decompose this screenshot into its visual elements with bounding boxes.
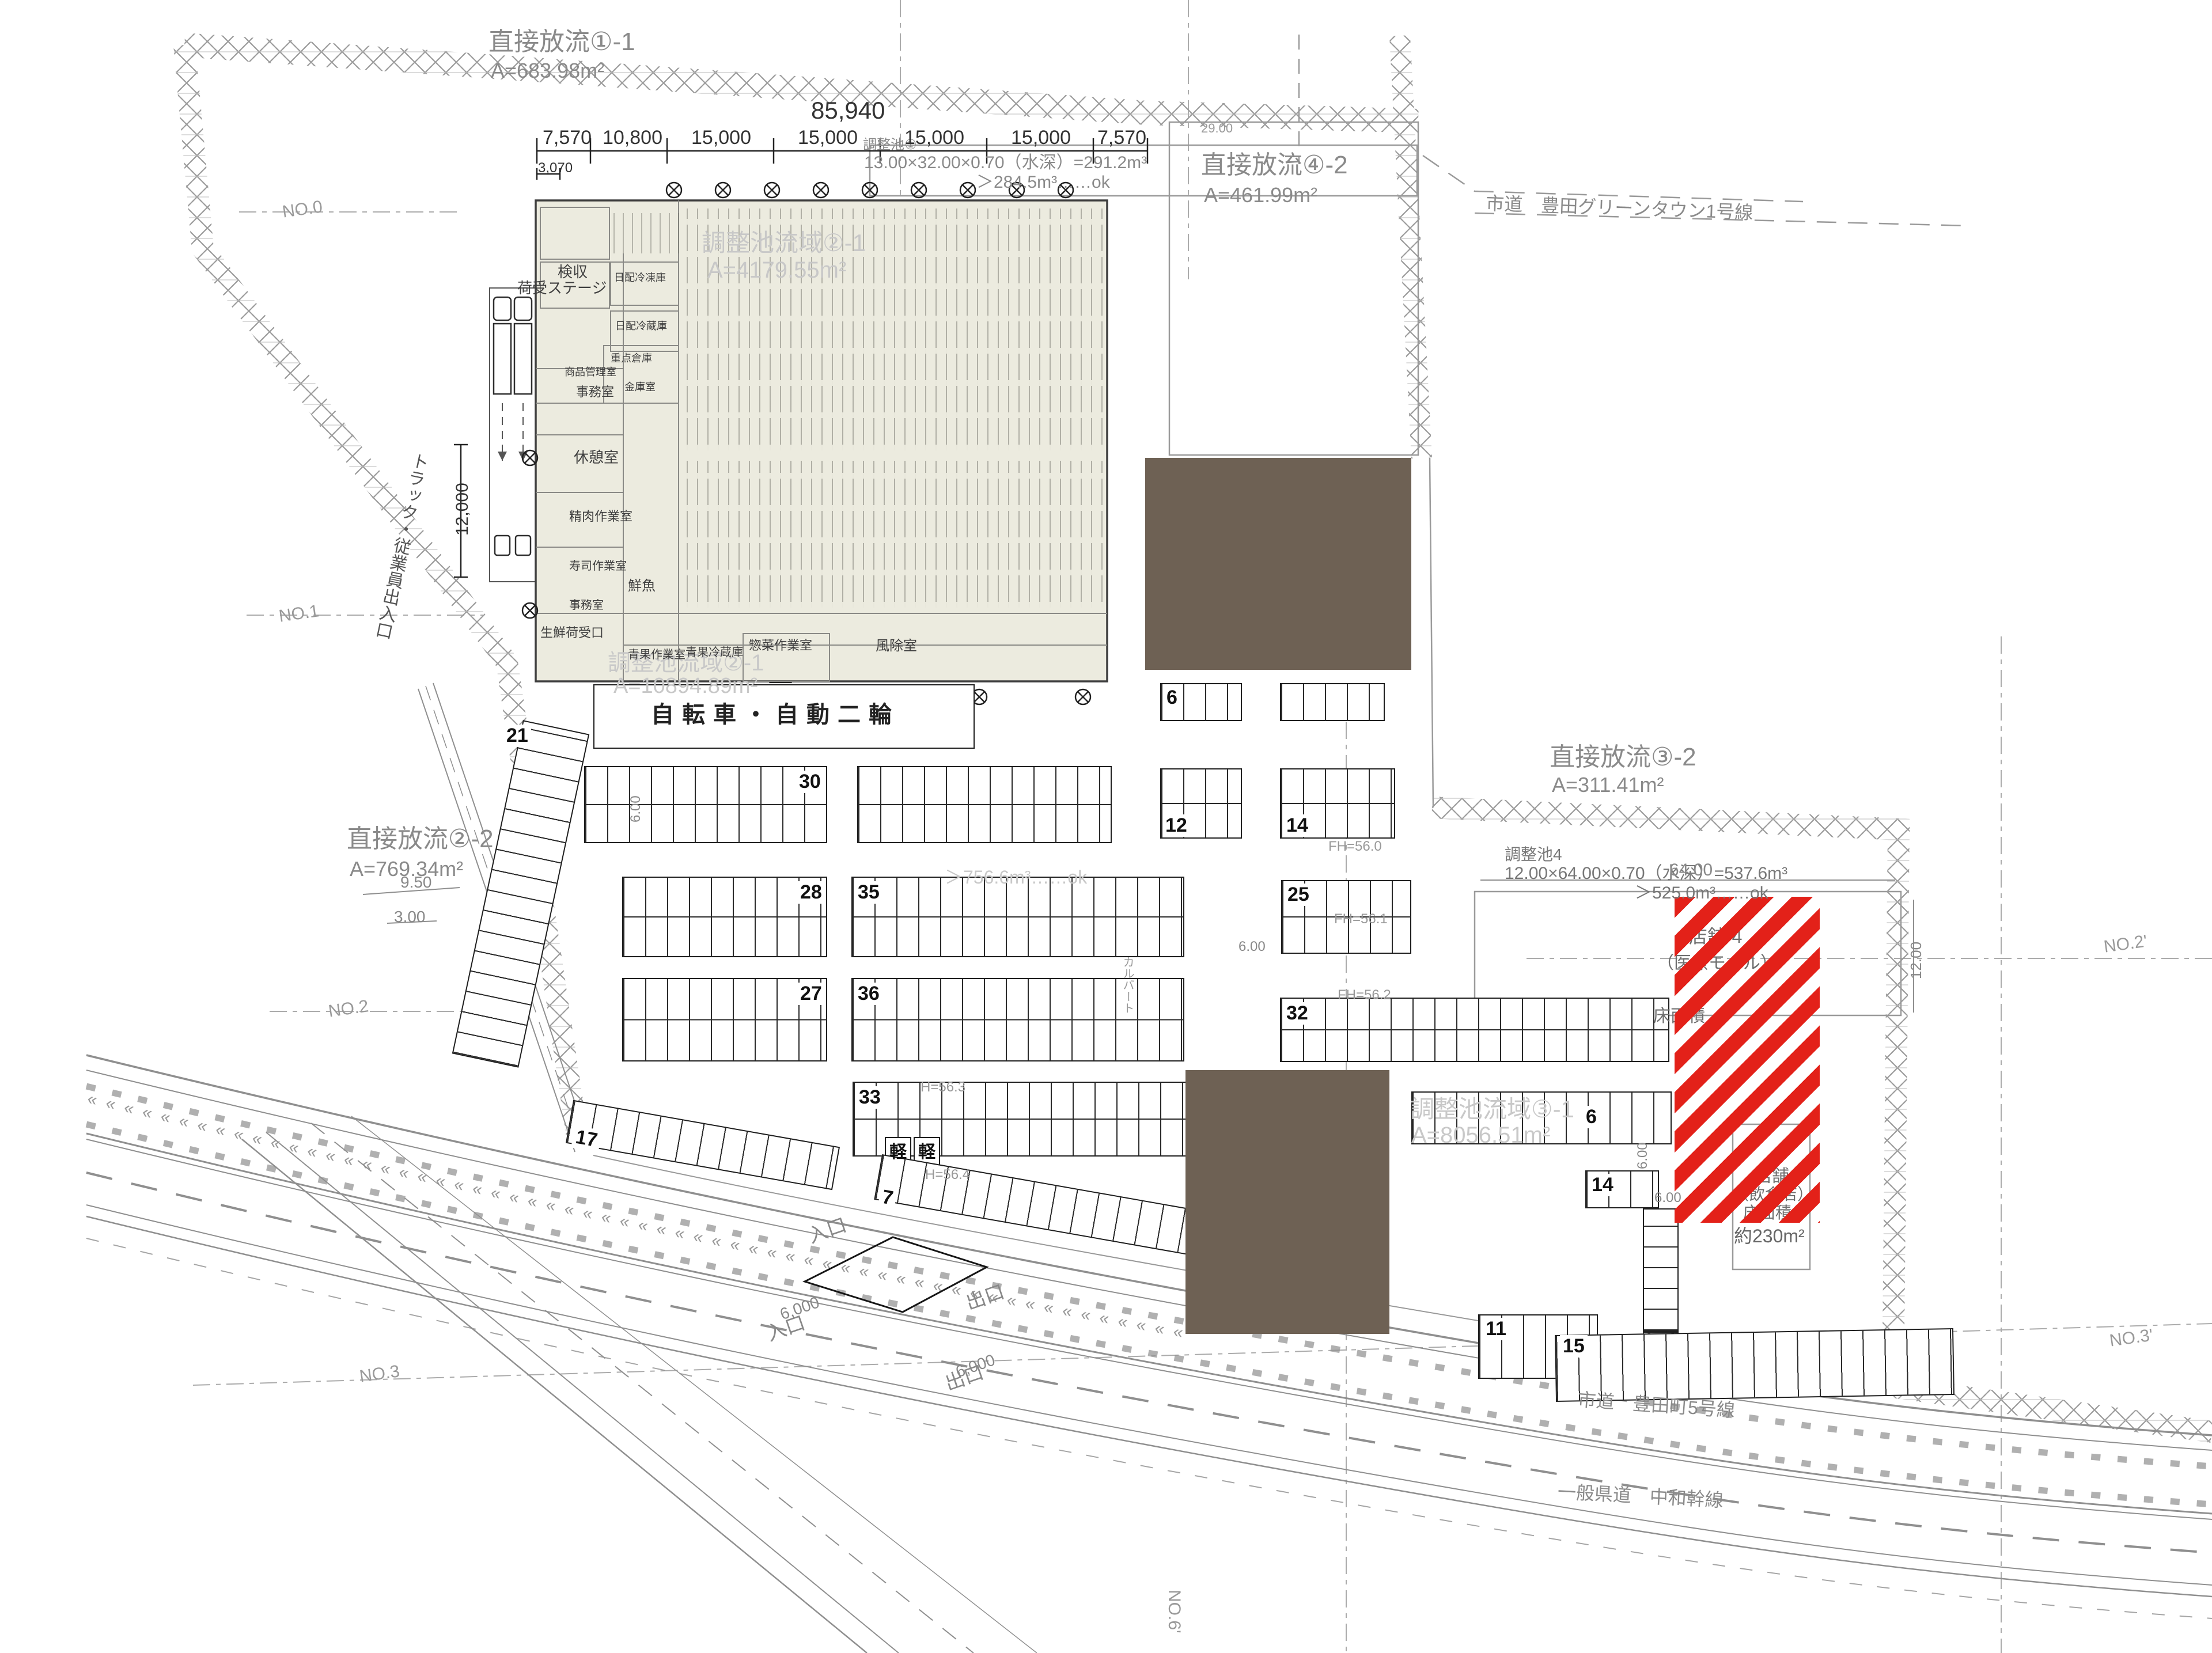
culvert-label: カルバート — [1120, 956, 1134, 1014]
room-kenshu: 検収 — [558, 264, 588, 281]
parking-num-30: 30 — [796, 771, 824, 793]
room-stage: 荷受ステージ — [517, 280, 607, 297]
dim-seg-4: 15,000 — [904, 127, 964, 149]
discharge-4-2-label: 直接放流④-2 — [1201, 151, 1348, 180]
parking-kei-1: 軽 — [889, 1143, 907, 1163]
parking-num-33: 33 — [856, 1086, 884, 1109]
dim-sub: 3,070 — [538, 160, 573, 176]
parking-num-14b: 14 — [1589, 1174, 1616, 1196]
parking-row-27 — [622, 978, 827, 1061]
discharge-1-1-label: 直接放流①-1 — [488, 28, 635, 57]
parking-kei-2: 軽 — [918, 1143, 935, 1163]
watershed-check: ＞756.6m³……ok — [945, 867, 1087, 888]
room-seika-cold: 青果冷蔵庫 — [685, 646, 743, 659]
discharge-4-2-area: A=461.99m² — [1204, 183, 1317, 207]
level-fh1: FH=56.1 — [1334, 911, 1388, 927]
room-sengyo: 鮮魚 — [628, 578, 656, 594]
grid-no6d: NO.6' — [1164, 1590, 1184, 1633]
parking-row-15 — [1555, 1328, 1955, 1402]
dim-3-00: 3.00 — [394, 908, 426, 926]
level-h4: H=56.4 — [925, 1167, 970, 1183]
room-sozai: 惣菜作業室 — [749, 638, 812, 653]
site-plan-canvas: ««««««««««««««««««««««««««««««««««««««««… — [0, 0, 2212, 1653]
dim-seg-2: 15,000 — [691, 127, 751, 149]
rack-zone-south — [687, 461, 1104, 608]
pond4-name: 調整池4 — [1505, 846, 1562, 864]
room-jimu2: 事務室 — [569, 599, 604, 612]
discharge-3-2-label: 直接放流③-2 — [1550, 743, 1696, 772]
dim-pond4-h: 12.00 — [1908, 942, 1925, 979]
parking-num-6b: 6 — [1583, 1106, 1600, 1128]
dim-6-00-a: 6.00 — [628, 795, 644, 822]
dim-left: 12,000 — [453, 483, 473, 536]
parking-num-28: 28 — [797, 881, 825, 904]
pond1-calc: 13.00×32.00×0.70（水深）=291.2m³ — [864, 153, 1147, 173]
dim-pond4-w: 64.00 — [1669, 860, 1713, 881]
parking-num-32: 32 — [1283, 1002, 1311, 1025]
dim-seg-3: 15,000 — [798, 127, 858, 149]
parking-column-14b — [1643, 1208, 1679, 1332]
parking-row-32 — [1280, 998, 1669, 1062]
pond4-check: ＞525.0m³……ok — [1635, 884, 1768, 904]
dim-6-00-b: 6.00 — [1635, 1142, 1651, 1169]
pond1-check: ＞284.5m³……ok — [976, 173, 1110, 193]
dim-total: 85,940 — [811, 97, 885, 124]
parking-num-35: 35 — [855, 881, 882, 904]
level-fh0: FH=56.0 — [1328, 839, 1382, 855]
watershed-2-1b-area: A=10894.89m² — [613, 674, 757, 699]
rack-zone-dock — [613, 213, 683, 253]
parking-row-30-left — [584, 766, 827, 843]
room-fujo: 風除室 — [876, 638, 917, 654]
level-fh2: FH=56.2 — [1338, 987, 1391, 1003]
room-nippai-c: 日配冷蔵庫 — [615, 320, 667, 332]
watershed-3-1-name: 調整池流域③-1 — [1410, 1095, 1574, 1123]
store-food-area: 約230m² — [1734, 1226, 1805, 1247]
parking-num-25: 25 — [1285, 884, 1312, 906]
parking-num-27: 27 — [797, 983, 825, 1005]
parking-num-15: 15 — [1560, 1335, 1588, 1358]
discharge-2-2-label: 直接放流②-2 — [347, 825, 494, 854]
watershed-3-1-area: A=8056.51m² — [1411, 1122, 1550, 1148]
room-jimu1: 事務室 — [576, 385, 614, 399]
parking-num-17: 17 — [571, 1125, 602, 1152]
dim-9-50: 9.50 — [400, 873, 432, 892]
room-seika-work: 青果作業室 — [628, 649, 685, 662]
parking-num-36: 36 — [855, 983, 882, 1005]
parking-row-6a-right — [1280, 683, 1385, 721]
parking-row-30-right — [857, 766, 1112, 843]
room-shohin: 商品管理室 — [565, 366, 616, 378]
room-kinko: 金庫室 — [624, 381, 656, 393]
room-sushi: 寿司作業室 — [569, 560, 627, 573]
watershed-2-1a-name: 調整池流域②-1 — [702, 229, 866, 257]
building-mass-north — [1145, 458, 1411, 670]
room-nippai-f: 日配冷凍庫 — [614, 272, 666, 284]
parking-row-36 — [851, 978, 1184, 1061]
dim-seg-5: 15,000 — [1011, 127, 1071, 149]
parking-num-21: 21 — [503, 725, 531, 747]
pond4-calc: 12.00×64.00×0.70（水深）=537.6m³ — [1505, 864, 1787, 884]
dim-seg-6: 7,570 — [1097, 127, 1146, 149]
watershed-2-1a-area: A=4179.55m² — [707, 257, 846, 283]
discharge-3-2-area: A=311.41m² — [1552, 773, 1664, 797]
proposed-store-zone — [1675, 897, 1820, 1223]
dim-seg-0: 7,570 — [543, 127, 592, 149]
room-seiniku: 精肉作業室 — [569, 509, 632, 524]
dim-6-00-c: 6.00 — [1654, 1190, 1681, 1206]
parking-num-14a: 14 — [1283, 814, 1311, 837]
level-h3: H=56.3 — [921, 1079, 965, 1095]
parking-num-11: 11 — [1483, 1318, 1509, 1340]
room-juten: 重点倉庫 — [611, 352, 652, 365]
room-kyukei: 休憩室 — [574, 449, 619, 467]
dim-6-00-d: 6.00 — [1238, 939, 1266, 955]
parking-row-28 — [622, 877, 827, 957]
discharge-1-1-area: A=683.98m² — [491, 59, 604, 82]
bicycle-area-label: 自転車・自動二輪 — [651, 702, 900, 728]
parking-num-6a: 6 — [1164, 687, 1180, 709]
parking-row-35 — [851, 877, 1184, 957]
building-mass-south — [1185, 1070, 1389, 1334]
room-seisen: 生鮮荷受口 — [540, 625, 604, 640]
dim-seg-1: 10,800 — [603, 127, 662, 149]
parking-num-12: 12 — [1162, 814, 1190, 837]
dim-edge: 29.00 — [1201, 121, 1233, 135]
